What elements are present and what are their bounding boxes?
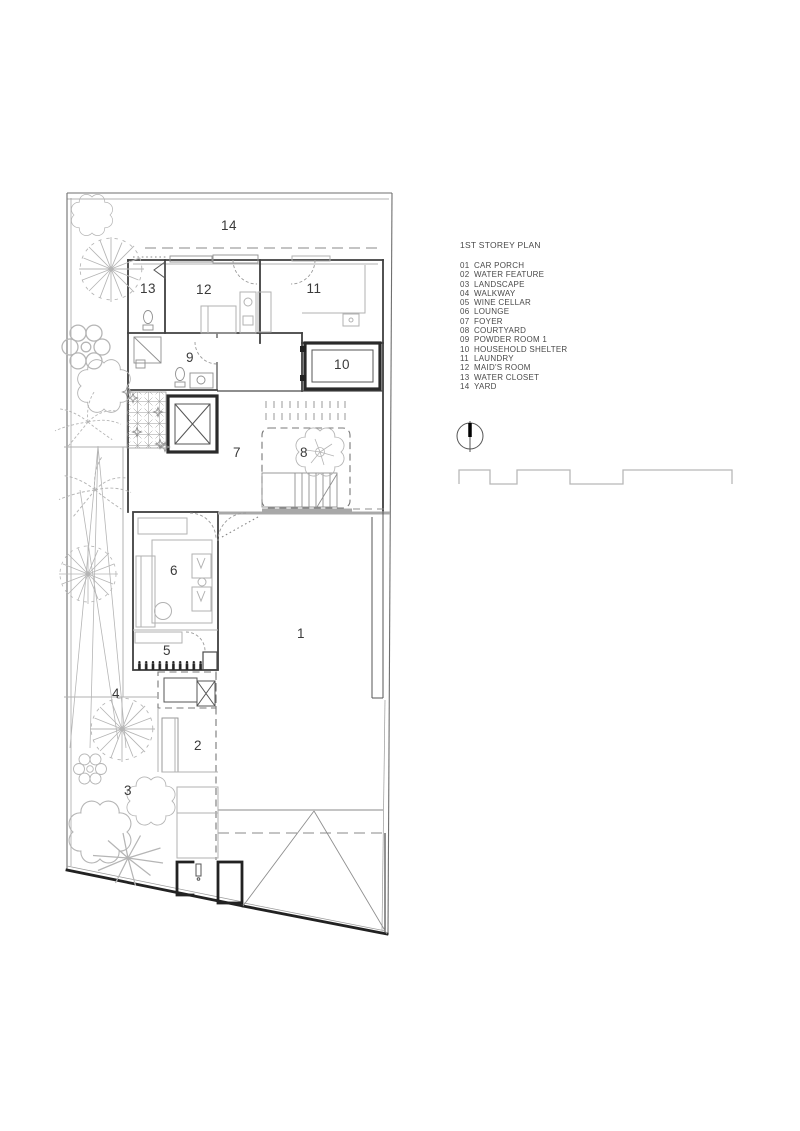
legend-title: 1ST STOREY PLAN <box>460 240 567 250</box>
room-label-powder-room: 9 <box>186 350 194 365</box>
legend-item-num: 10 <box>460 345 474 354</box>
room-label-courtyard: 8 <box>300 445 308 460</box>
property-boundary <box>67 193 392 935</box>
north-arrow-icon <box>457 421 483 452</box>
room-label-maids-room: 12 <box>196 282 212 297</box>
legend-item: 14YARD <box>460 382 567 391</box>
legend-item: 01CAR PORCH <box>460 261 567 270</box>
room-label-foyer: 7 <box>233 445 241 460</box>
room-label-yard: 14 <box>221 218 237 233</box>
legend-item-label: HOUSEHOLD SHELTER <box>474 345 567 354</box>
legend-item-num: 03 <box>460 280 474 289</box>
floor-plan-drawing: 1 2 3 4 5 6 7 8 9 10 11 12 13 14 <box>0 0 800 1131</box>
legend-item: 10HOUSEHOLD SHELTER <box>460 345 567 354</box>
legend-item-num: 05 <box>460 298 474 307</box>
floor-plan-page: 1 2 3 4 5 6 7 8 9 10 11 12 13 14 1ST STO… <box>0 0 800 1131</box>
legend-item-label: POWDER ROOM 1 <box>474 335 547 344</box>
legend-item-label: LAUNDRY <box>474 354 514 363</box>
legend-item: 04WALKWAY <box>460 289 567 298</box>
legend-item-num: 06 <box>460 307 474 316</box>
room-label-car-porch: 1 <box>297 626 305 641</box>
legend-item-num: 01 <box>460 261 474 270</box>
legend-item-label: MAID'S ROOM <box>474 363 531 372</box>
legend-item-label: WATER FEATURE <box>474 270 544 279</box>
legend-item-num: 07 <box>460 317 474 326</box>
legend-item: 07FOYER <box>460 317 567 326</box>
legend-item-label: YARD <box>474 382 497 391</box>
legend-item: 11LAUNDRY <box>460 354 567 363</box>
water-closet-fixtures <box>143 262 165 330</box>
legend-item: 09POWDER ROOM 1 <box>460 335 567 344</box>
water-feature <box>158 672 218 858</box>
room-label-laundry: 11 <box>306 281 321 296</box>
legend-item: 12MAID'S ROOM <box>460 363 567 372</box>
entrance-gate <box>177 862 242 903</box>
wine-rack <box>136 659 202 670</box>
room-label-lounge: 6 <box>170 563 178 578</box>
legend-item-num: 04 <box>460 289 474 298</box>
legend-item: 13WATER CLOSET <box>460 373 567 382</box>
legend-item-num: 13 <box>460 373 474 382</box>
legend-items: 01CAR PORCH 02WATER FEATURE 03LANDSCAPE … <box>460 261 567 391</box>
legend-item-label: LOUNGE <box>474 307 509 316</box>
legend: 1ST STOREY PLAN 01CAR PORCH 02WATER FEAT… <box>460 240 567 391</box>
room-label-walkway: 4 <box>112 686 120 701</box>
legend-item-label: WINE CELLAR <box>474 298 531 307</box>
stairs-icon <box>262 473 337 507</box>
legend-item: 08COURTYARD <box>460 326 567 335</box>
legend-item: 05WINE CELLAR <box>460 298 567 307</box>
legend-item-num: 02 <box>460 270 474 279</box>
legend-item-label: WATER CLOSET <box>474 373 539 382</box>
legend-item-num: 11 <box>460 354 474 363</box>
site-profile-line <box>459 470 732 484</box>
legend-item-label: WALKWAY <box>474 289 515 298</box>
legend-item-num: 14 <box>460 382 474 391</box>
room-label-landscape: 3 <box>124 783 132 798</box>
legend-item: 02WATER FEATURE <box>460 270 567 279</box>
room-label-water-feature: 2 <box>194 738 202 753</box>
legend-item-num: 12 <box>460 363 474 372</box>
legend-item: 03LANDSCAPE <box>460 280 567 289</box>
powder-room-fixtures <box>134 337 213 388</box>
maids-room-fixtures <box>201 292 256 333</box>
legend-item-label: COURTYARD <box>474 326 526 335</box>
room-label-water-closet: 13 <box>140 281 156 296</box>
elevator-icon <box>168 396 217 452</box>
laundry-fixtures <box>258 265 365 332</box>
legend-item-num: 09 <box>460 335 474 344</box>
legend-item-label: LANDSCAPE <box>474 280 525 289</box>
lounge-wine-cellar-block <box>133 512 218 670</box>
legend-item-num: 08 <box>460 326 474 335</box>
legend-item-label: CAR PORCH <box>474 261 524 270</box>
room-label-wine-cellar: 5 <box>163 643 171 658</box>
legend-item-label: FOYER <box>474 317 503 326</box>
room-label-household-shelter: 10 <box>334 357 350 372</box>
legend-item: 06LOUNGE <box>460 307 567 316</box>
